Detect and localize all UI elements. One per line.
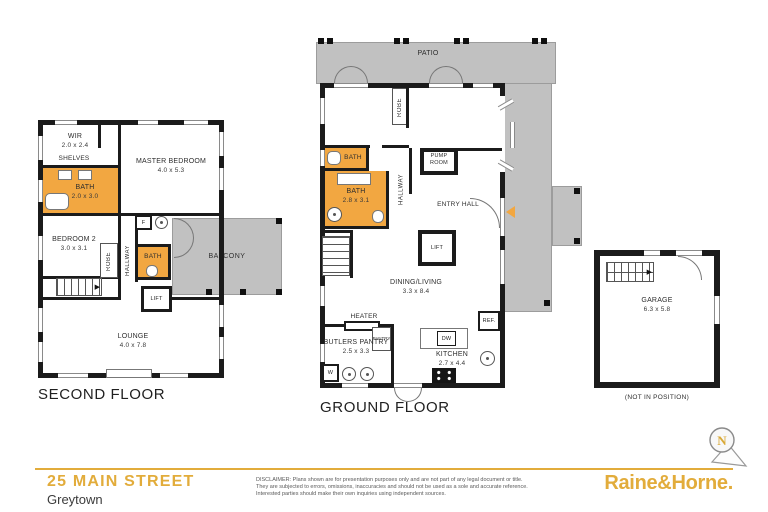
floorplan-page: BALCONY (0, 0, 768, 512)
brand-logo: Raine&Horne. (520, 472, 733, 495)
footer-divider (35, 468, 733, 470)
address-line2: Greytown (47, 492, 103, 507)
footer: 25 MAIN STREET Greytown DISCLAIMER: Plan… (0, 0, 768, 512)
address-line1: 25 MAIN STREET (47, 473, 195, 491)
